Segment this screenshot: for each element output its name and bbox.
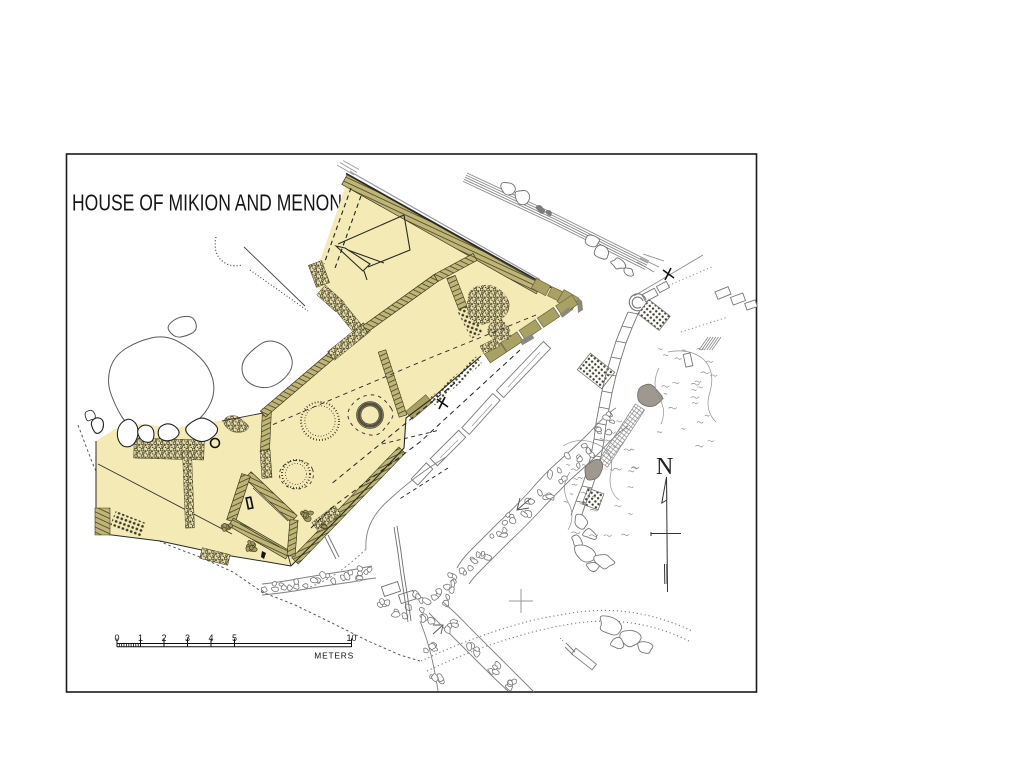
svg-text:2: 2 — [161, 633, 166, 643]
svg-text:0: 0 — [114, 633, 119, 643]
svg-text:3: 3 — [185, 633, 190, 643]
svg-text:5: 5 — [232, 633, 237, 643]
svg-text:1: 1 — [138, 633, 143, 643]
svg-text:4: 4 — [208, 633, 213, 643]
svg-text:METERS: METERS — [314, 651, 354, 661]
svg-text:10: 10 — [346, 633, 356, 643]
svg-text:HOUSE OF MIKION AND MENON: HOUSE OF MIKION AND MENON — [72, 190, 342, 216]
svg-text:N: N — [656, 454, 673, 480]
